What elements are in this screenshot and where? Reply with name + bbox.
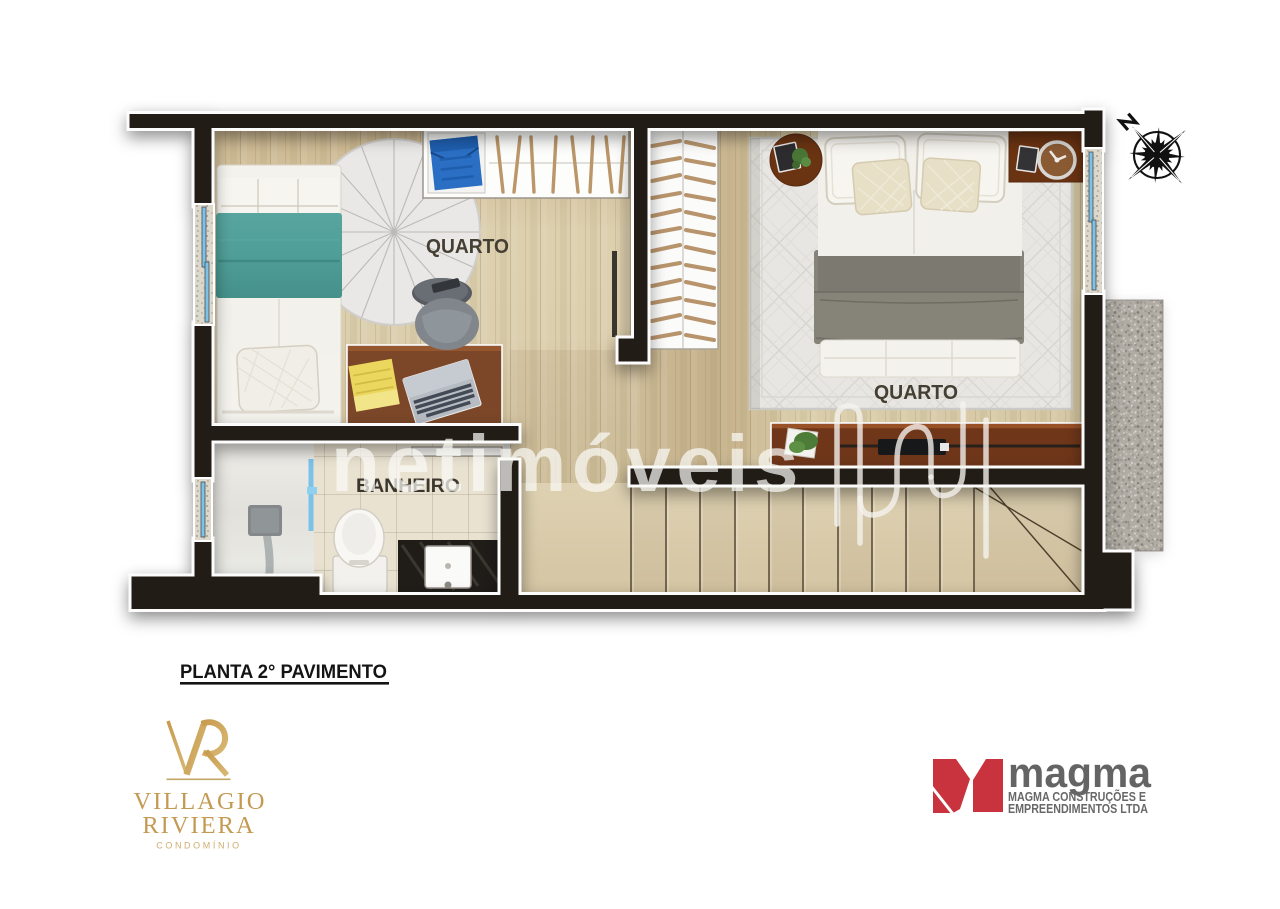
svg-text:QUARTO: QUARTO (426, 235, 509, 258)
svg-text:magma: magma (1008, 749, 1152, 796)
svg-text:PLANTA 2° PAVIMENTO: PLANTA 2° PAVIMENTO (180, 661, 387, 683)
svg-text:netimóveis: netimóveis (331, 419, 804, 508)
svg-text:EMPREENDIMENTOS LTDA: EMPREENDIMENTOS LTDA (1008, 802, 1148, 816)
svg-text:QUARTO: QUARTO (874, 381, 958, 404)
svg-text:CONDOMÍNIO: CONDOMÍNIO (156, 841, 242, 851)
svg-text:VILLAGIO: VILLAGIO (133, 788, 266, 815)
svg-text:RIVIERA: RIVIERA (142, 812, 255, 839)
